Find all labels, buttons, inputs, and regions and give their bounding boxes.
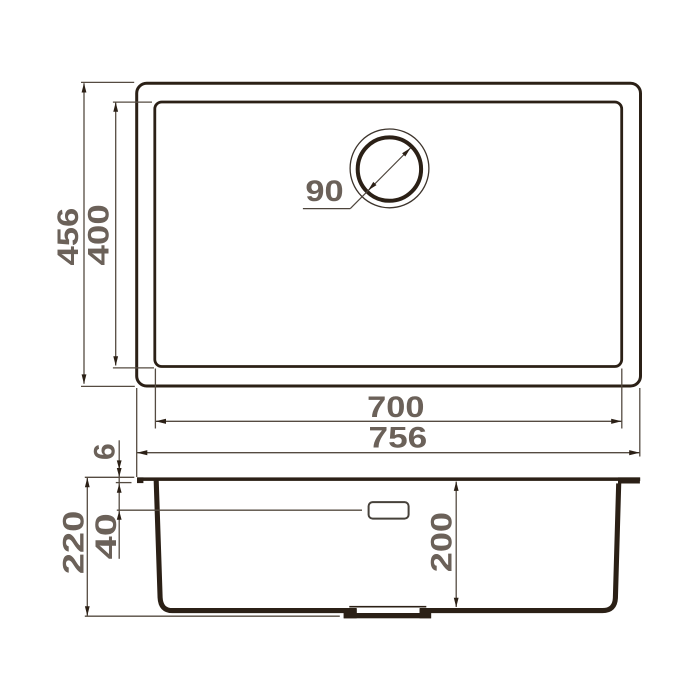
svg-text:200: 200 xyxy=(425,512,458,572)
svg-text:700: 700 xyxy=(367,391,424,424)
svg-text:6: 6 xyxy=(88,443,121,460)
svg-text:90: 90 xyxy=(305,175,343,208)
svg-text:40: 40 xyxy=(90,513,123,559)
svg-text:400: 400 xyxy=(83,204,116,265)
svg-text:756: 756 xyxy=(369,421,428,454)
svg-text:220: 220 xyxy=(57,511,90,575)
svg-text:456: 456 xyxy=(52,208,85,266)
